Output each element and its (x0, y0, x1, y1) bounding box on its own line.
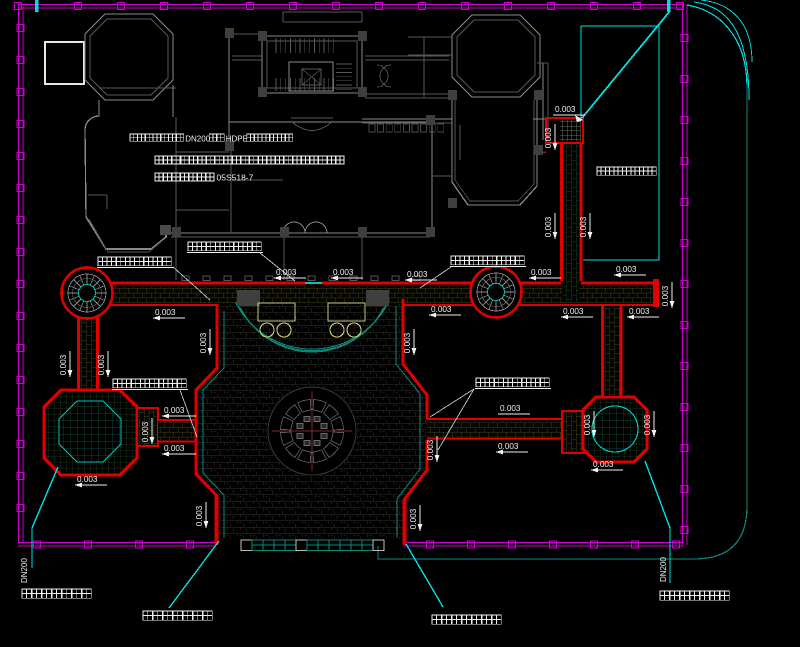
svg-text:0.003: 0.003 (59, 354, 68, 375)
svg-text:DN200: DN200 (185, 135, 210, 144)
svg-text:0.003: 0.003 (276, 268, 297, 277)
svg-text:0.003: 0.003 (643, 414, 652, 435)
svg-text:0.003: 0.003 (333, 268, 354, 277)
svg-text:0.003: 0.003 (498, 442, 519, 451)
svg-text:0.003: 0.003 (431, 305, 452, 314)
svg-text:05S518-7: 05S518-7 (217, 173, 254, 183)
svg-text:DN200: DN200 (20, 558, 29, 583)
svg-text:0.003: 0.003 (555, 105, 576, 114)
svg-text:0.003: 0.003 (563, 307, 584, 316)
svg-text:HDPE: HDPE (226, 135, 248, 144)
svg-text:0.003: 0.003 (195, 505, 204, 526)
svg-text:0.003: 0.003 (164, 444, 185, 453)
svg-text:0.003: 0.003 (544, 216, 553, 237)
svg-text:0.003: 0.003 (199, 332, 208, 353)
svg-text:0.003: 0.003 (77, 475, 98, 484)
svg-text:0.003: 0.003 (141, 421, 150, 442)
svg-text:0.003: 0.003 (97, 354, 106, 375)
svg-text:0.003: 0.003 (531, 268, 552, 277)
svg-text:DN200: DN200 (659, 557, 668, 582)
svg-text:0.003: 0.003 (403, 332, 412, 353)
svg-text:0.003: 0.003 (155, 308, 176, 317)
svg-text:0.003: 0.003 (407, 270, 428, 279)
svg-text:0.003: 0.003 (593, 460, 614, 469)
svg-text:0.003: 0.003 (426, 439, 435, 460)
svg-text:0.003: 0.003 (500, 404, 521, 413)
svg-text:0.003: 0.003 (579, 216, 588, 237)
svg-text:0.003: 0.003 (661, 285, 670, 306)
svg-text:0.003: 0.003 (544, 127, 553, 148)
svg-text:0.003: 0.003 (616, 265, 637, 274)
svg-text:0.003: 0.003 (164, 406, 185, 415)
svg-text:0.003: 0.003 (583, 414, 592, 435)
svg-text:0.003: 0.003 (409, 508, 418, 529)
svg-text:0.003: 0.003 (629, 307, 650, 316)
